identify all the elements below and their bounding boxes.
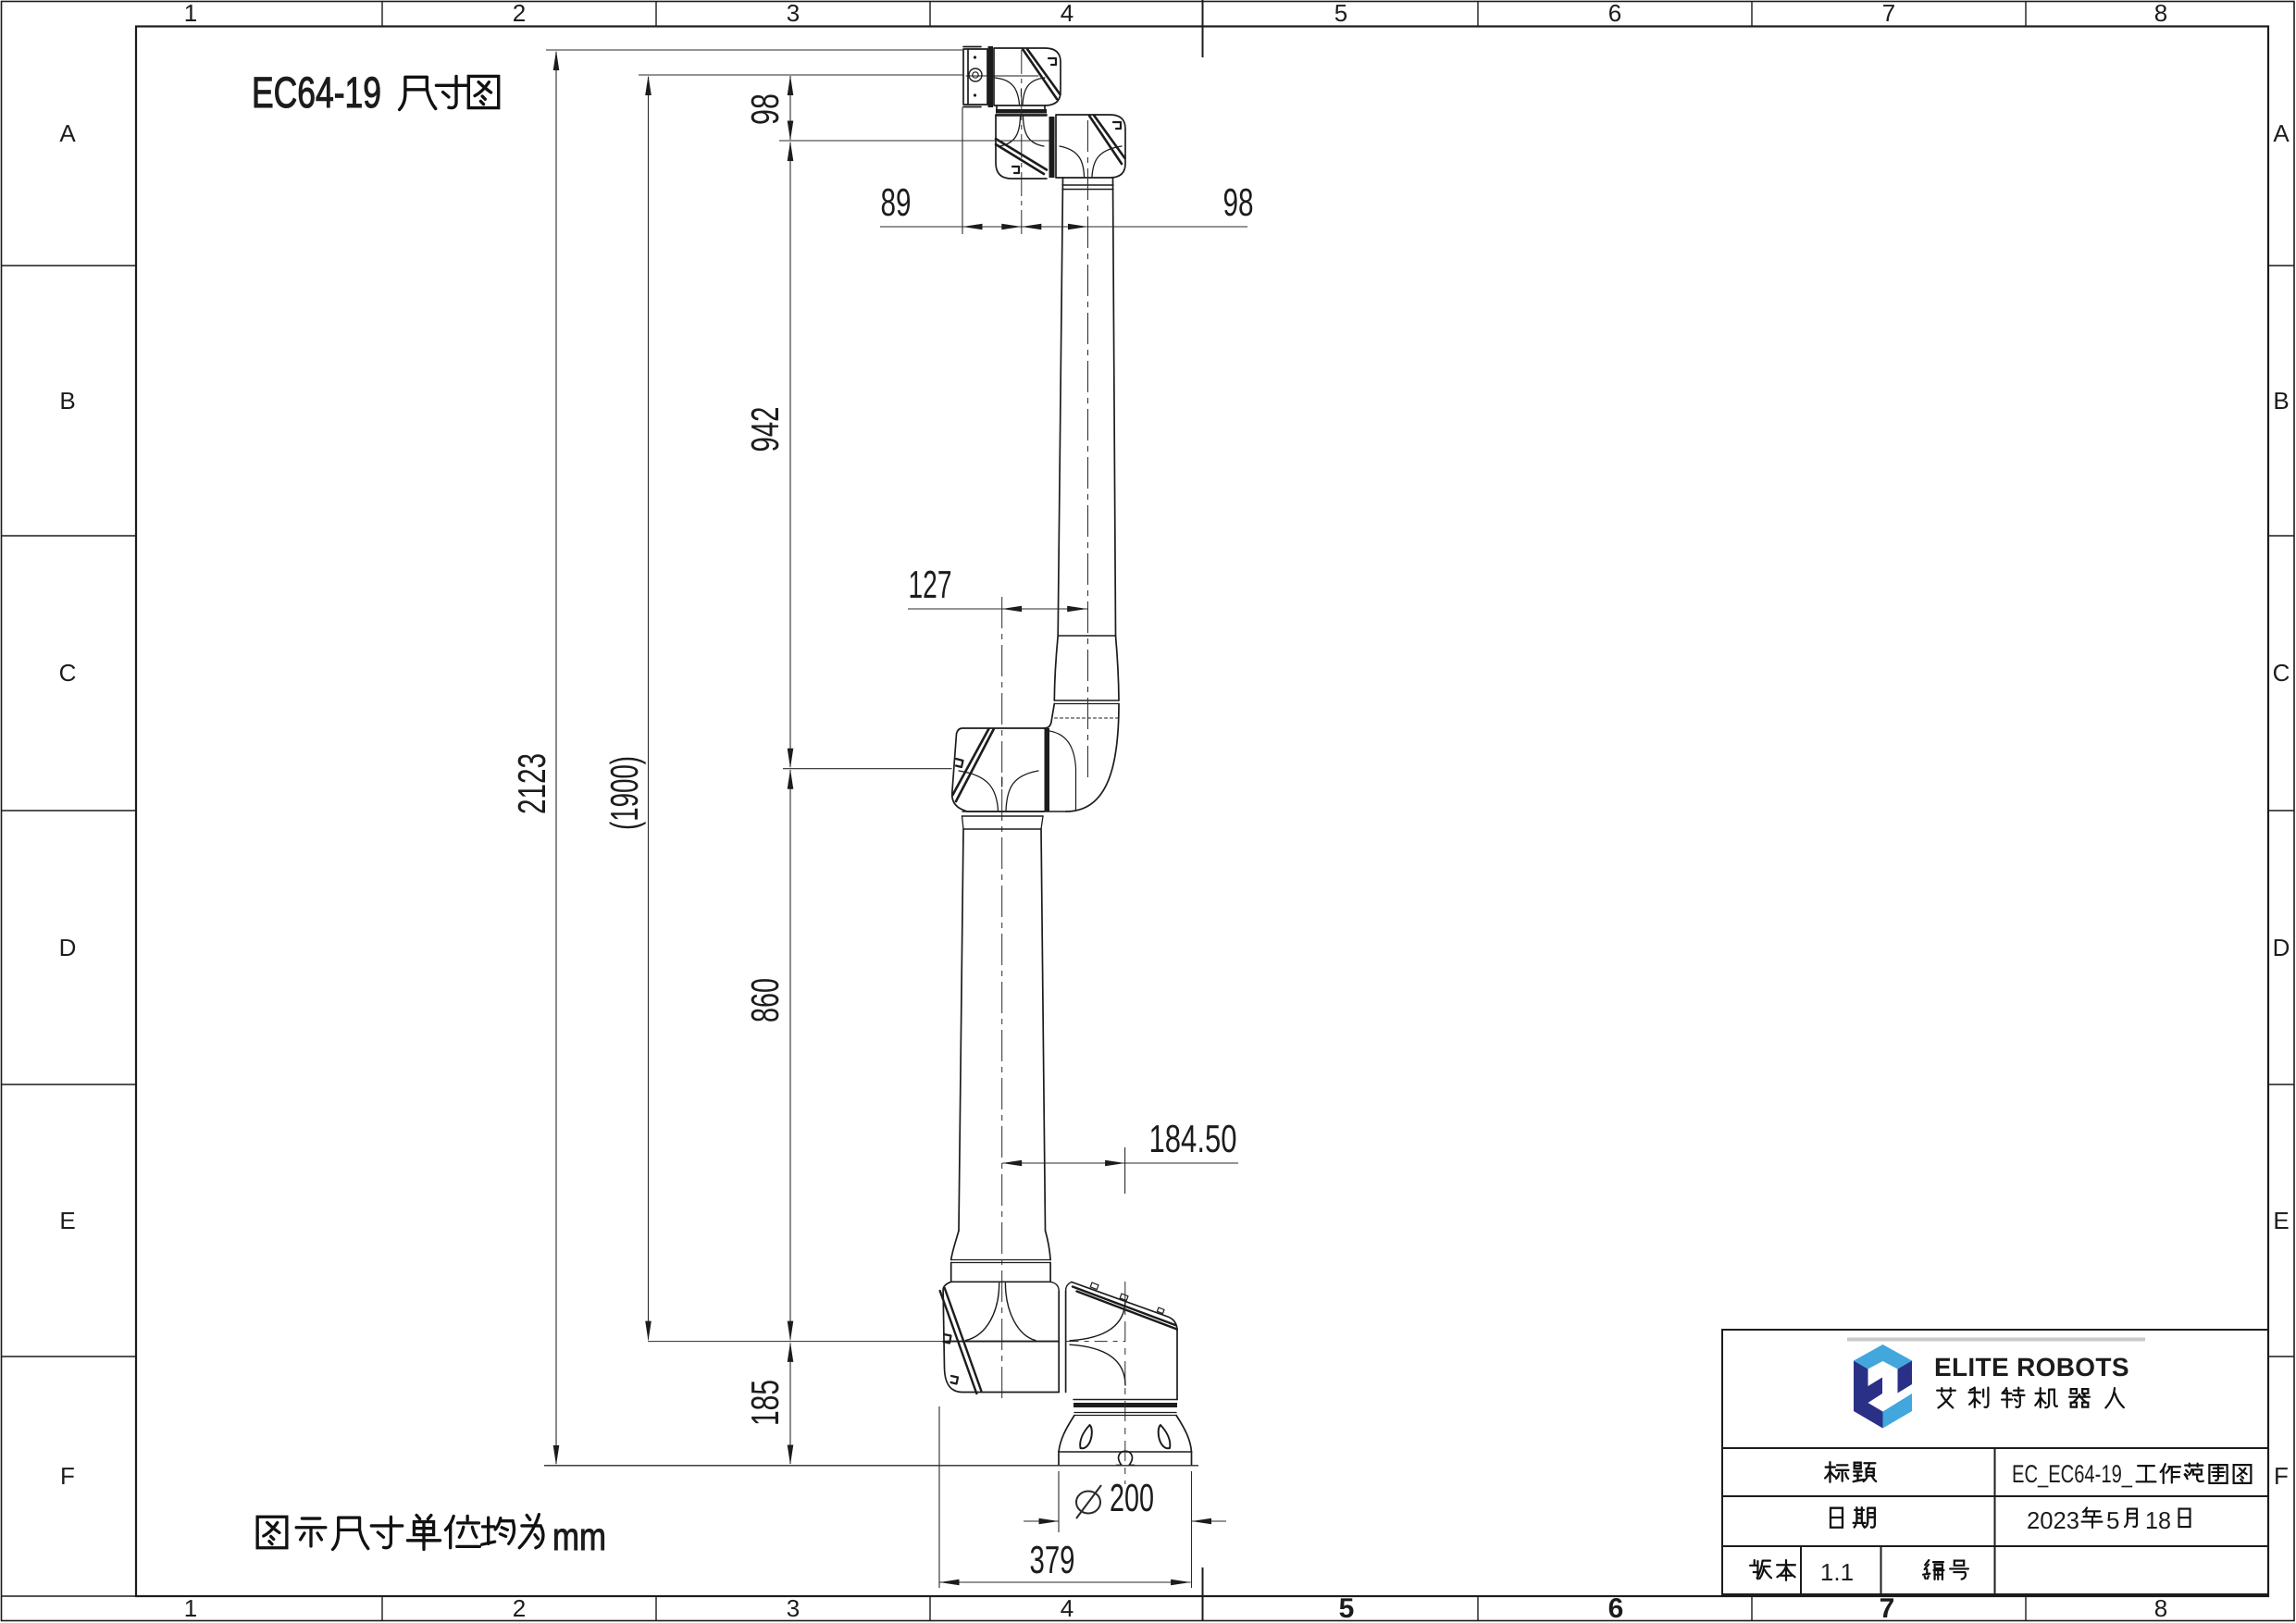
- svg-text:5: 5: [1339, 1593, 1355, 1623]
- svg-text:D: D: [59, 934, 77, 961]
- svg-text:4: 4: [1061, 1594, 1074, 1622]
- svg-text:B: B: [2273, 387, 2289, 415]
- svg-text:F: F: [60, 1462, 75, 1490]
- svg-text:1: 1: [184, 1594, 197, 1622]
- svg-text:89: 89: [881, 180, 912, 224]
- svg-text:3: 3: [787, 1594, 800, 1622]
- svg-text:A: A: [2273, 119, 2290, 147]
- svg-text:7: 7: [1882, 0, 1895, 27]
- svg-text:E: E: [2273, 1207, 2289, 1234]
- svg-text:(1900): (1900): [602, 756, 646, 830]
- svg-text:D: D: [2273, 934, 2290, 961]
- svg-text:5: 5: [1334, 0, 1347, 27]
- svg-text:860: 860: [743, 978, 787, 1022]
- svg-text:6: 6: [1608, 0, 1621, 27]
- svg-text:98: 98: [1223, 180, 1254, 224]
- svg-text:7: 7: [1880, 1593, 1895, 1623]
- svg-text:200: 200: [1110, 1476, 1154, 1519]
- svg-text:2: 2: [513, 1594, 526, 1622]
- svg-text:2: 2: [513, 0, 526, 27]
- svg-text:8: 8: [2154, 0, 2167, 27]
- svg-text:942: 942: [743, 407, 787, 452]
- svg-text:98: 98: [743, 93, 787, 125]
- svg-text:EC64-19: EC64-19: [252, 68, 381, 117]
- svg-text:ELITE ROBOTS: ELITE ROBOTS: [1934, 1353, 2131, 1381]
- svg-text:6: 6: [1608, 1593, 1624, 1623]
- svg-text:F: F: [2274, 1462, 2289, 1490]
- svg-text:2123: 2123: [510, 753, 553, 814]
- svg-text:185: 185: [743, 1380, 787, 1426]
- svg-text:2023: 2023: [2027, 1506, 2079, 1534]
- svg-text:8: 8: [2154, 1594, 2167, 1622]
- svg-text:mm: mm: [552, 1515, 606, 1558]
- svg-text:184.50: 184.50: [1149, 1117, 1237, 1160]
- svg-text:379: 379: [1030, 1538, 1075, 1581]
- svg-text:EC_EC64-19_: EC_EC64-19_: [2012, 1460, 2133, 1488]
- svg-text:1.1: 1.1: [1820, 1558, 1854, 1586]
- svg-text:18: 18: [2145, 1506, 2171, 1534]
- svg-text:C: C: [59, 659, 77, 687]
- svg-text:E: E: [59, 1207, 75, 1234]
- svg-text:B: B: [59, 387, 75, 415]
- svg-text:C: C: [2273, 659, 2290, 687]
- svg-text:4: 4: [1061, 0, 1074, 27]
- svg-text:1: 1: [184, 0, 197, 27]
- svg-text:A: A: [59, 119, 76, 147]
- svg-text:127: 127: [909, 563, 952, 606]
- svg-text:5: 5: [2106, 1506, 2119, 1534]
- svg-text:3: 3: [787, 0, 800, 27]
